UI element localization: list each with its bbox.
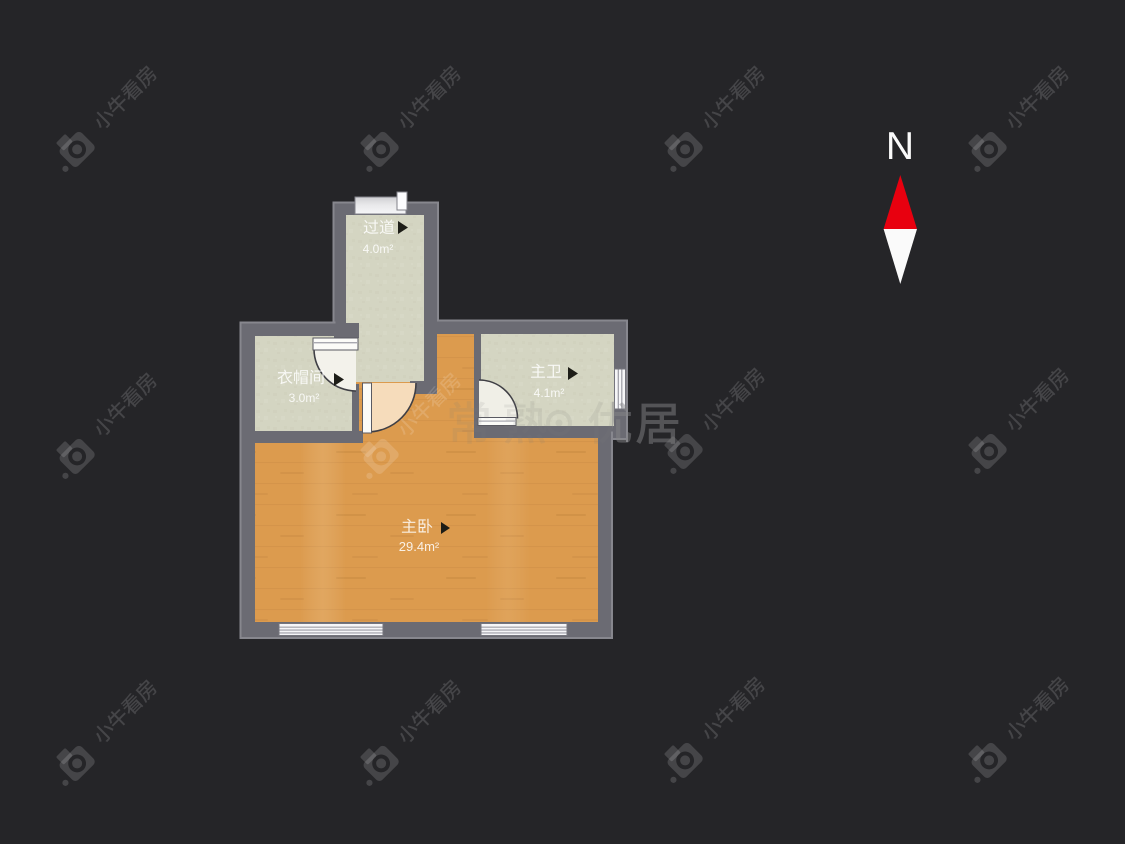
svg-text:4.1m²: 4.1m² [534,386,565,400]
svg-text:N: N [886,125,914,168]
svg-text:3.0m²: 3.0m² [289,391,320,405]
svg-text:4.0m²: 4.0m² [363,242,394,256]
svg-text:29.4m²: 29.4m² [399,539,440,554]
